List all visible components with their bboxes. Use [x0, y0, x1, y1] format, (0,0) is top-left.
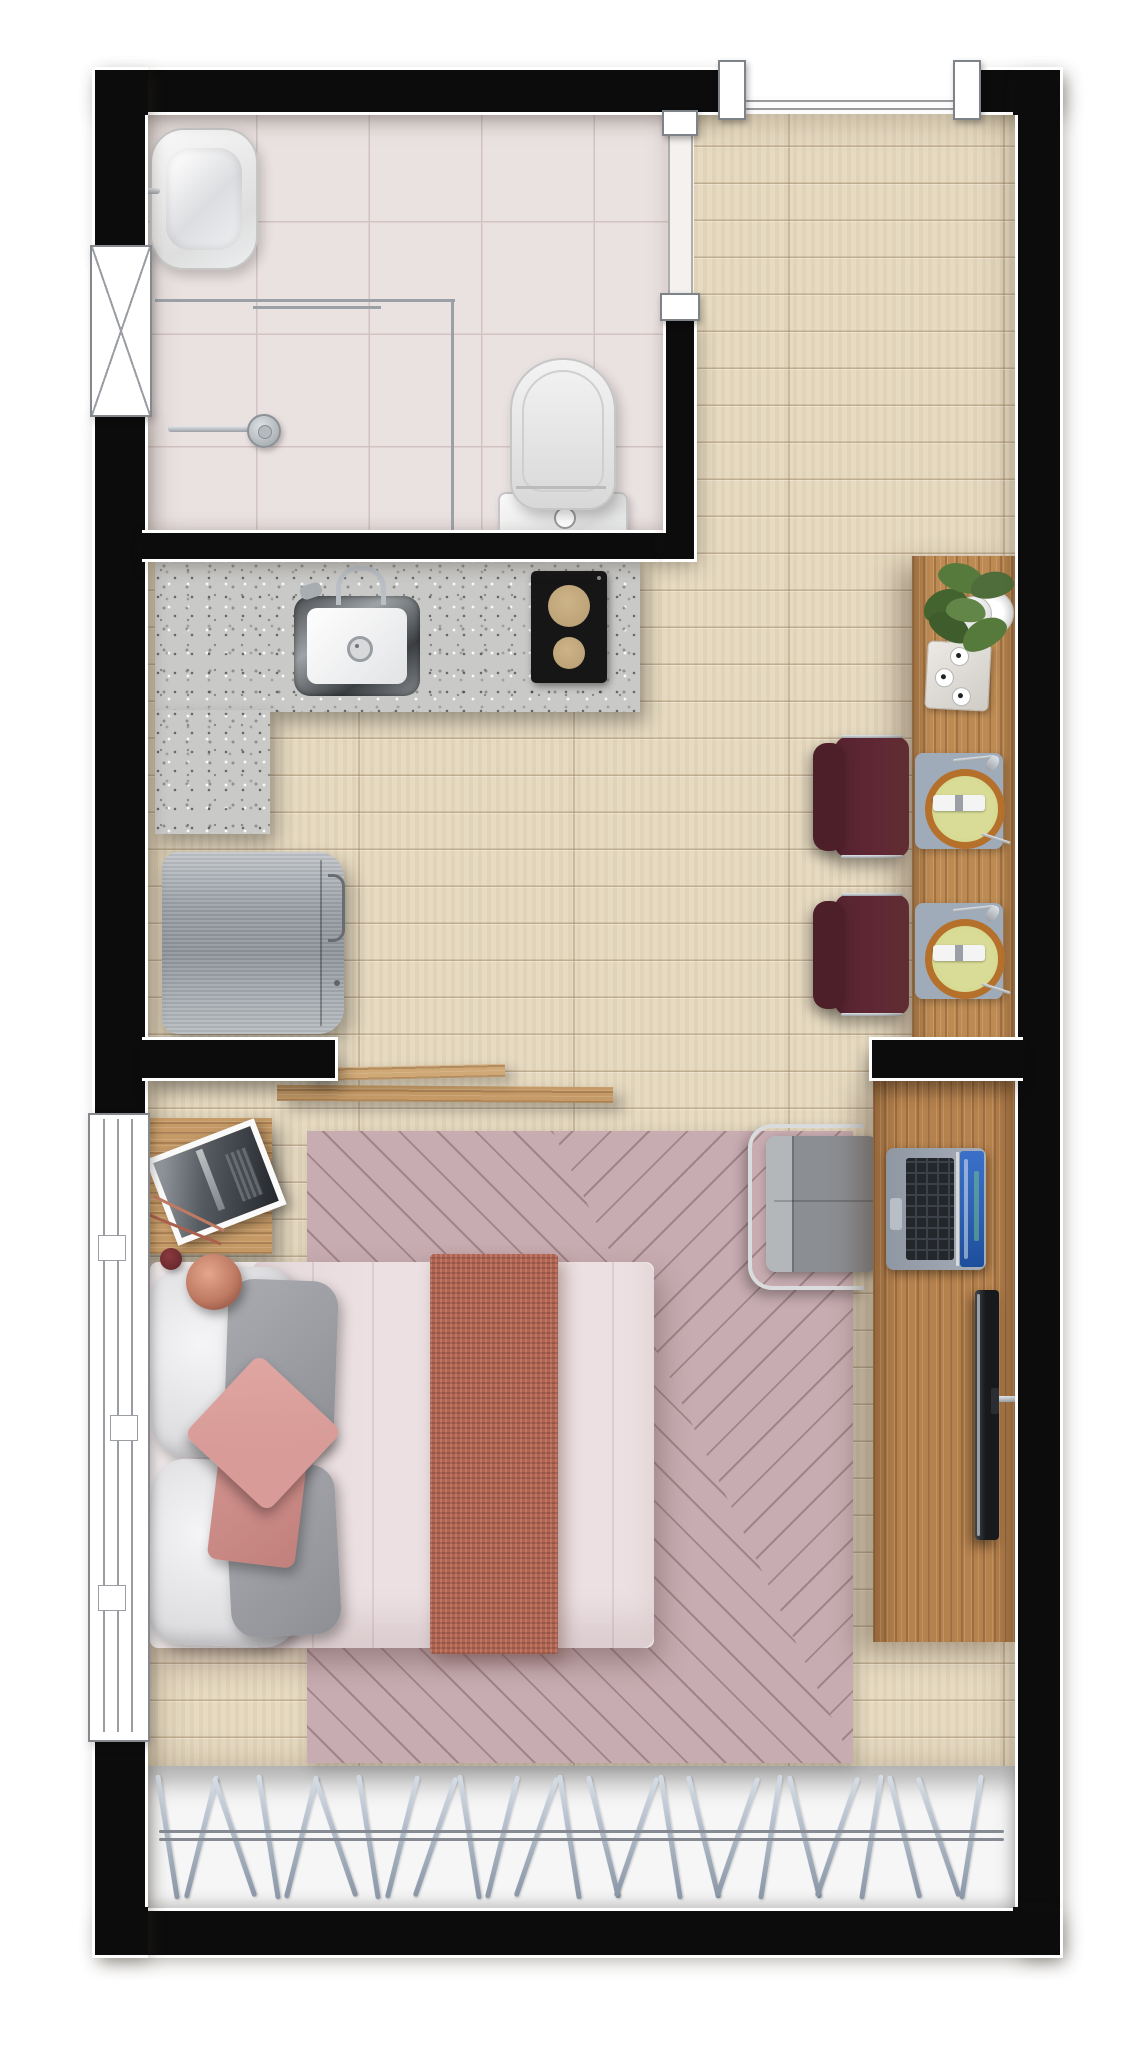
- kitchen-counter-granite-return: [155, 710, 270, 834]
- wall-left-mid: [95, 412, 145, 1113]
- floor-plan-canvas: [0, 0, 1138, 2048]
- clothes-hanger: [658, 1774, 683, 1899]
- clothes-hanger: [557, 1774, 582, 1899]
- clothes-hanger: [614, 1777, 660, 1898]
- basin-bowl: [166, 148, 242, 250]
- tv-bracket-arm: [991, 1388, 999, 1414]
- bedroom-sliding-window: [88, 1113, 150, 1742]
- clothes-hanger: [485, 1775, 520, 1898]
- closet-rail: [159, 1830, 1004, 1833]
- shower-head-icon: [247, 414, 281, 448]
- wall-right: [1018, 70, 1060, 1955]
- toilet-bowl: [510, 358, 616, 510]
- sink-drain: [347, 636, 373, 662]
- wall-top: [95, 70, 720, 112]
- burner-small: [553, 637, 585, 669]
- clothes-hanger: [714, 1777, 760, 1898]
- laptop-keyboard: [906, 1158, 954, 1260]
- laptop-touchpad: [890, 1198, 902, 1230]
- kitchen-sink: [294, 596, 420, 696]
- shower-glass-door: [253, 306, 381, 309]
- clothes-hanger: [585, 1775, 620, 1898]
- bathroom-door-jamb: [660, 293, 700, 321]
- clothes-hanger: [786, 1775, 821, 1898]
- clothes-hanger: [413, 1777, 459, 1898]
- throw-blanket: [430, 1254, 558, 1654]
- clothes-hanger: [457, 1774, 482, 1899]
- flush-button: [554, 507, 576, 529]
- place-setting: [915, 753, 1003, 849]
- clothes-hanger: [915, 1777, 961, 1898]
- clothes-hanger: [959, 1774, 984, 1899]
- closet-rail: [159, 1838, 1004, 1841]
- wall-bathroom-right: [666, 318, 694, 559]
- clothes-hanger: [859, 1774, 884, 1899]
- clothes-hanger: [284, 1775, 319, 1898]
- sink-basin: [307, 608, 407, 684]
- fridge-handle: [328, 874, 345, 942]
- desk-chair: [748, 1124, 880, 1290]
- burner-large: [548, 585, 590, 627]
- clothes-hanger: [212, 1777, 258, 1898]
- tv: [975, 1290, 999, 1540]
- clothes-hanger: [312, 1777, 358, 1898]
- potted-plant: [918, 562, 1014, 662]
- place-setting: [915, 903, 1003, 999]
- copper-table-lamp: [186, 1254, 242, 1310]
- clothes-hanger: [686, 1775, 721, 1898]
- clothes-hanger: [183, 1775, 218, 1898]
- wall-shelf: [277, 1085, 613, 1103]
- entry-door-jamb: [953, 60, 981, 120]
- clothes-hanger: [887, 1775, 922, 1898]
- wall-stub-right: [872, 1040, 1020, 1078]
- clothes-hanger: [513, 1777, 559, 1898]
- clothes-hanger: [356, 1774, 381, 1899]
- shower-glass-partition: [155, 299, 455, 302]
- clothes-hanger: [758, 1774, 783, 1899]
- wall-bathroom-bottom: [145, 533, 668, 559]
- laptop: [886, 1148, 986, 1270]
- clothes-hanger: [815, 1777, 861, 1898]
- clothes-hanger: [155, 1774, 180, 1899]
- entry-door-opening: [744, 96, 955, 114]
- dining-chair: [811, 735, 912, 859]
- bathroom-door-jamb: [662, 110, 698, 136]
- clothes-hanger: [256, 1774, 281, 1899]
- cooktop: [531, 571, 607, 683]
- clothes-hanger: [384, 1775, 419, 1898]
- bathroom-high-window: [90, 245, 152, 417]
- wall-stub-left: [145, 1040, 335, 1078]
- kitchen-faucet: [336, 566, 386, 605]
- dining-chair: [811, 893, 912, 1017]
- shower-glass-partition: [451, 299, 454, 533]
- laptop-screen: [960, 1151, 984, 1267]
- closet-strip: [145, 1766, 1018, 1913]
- small-vase: [160, 1248, 182, 1270]
- washbasin: [150, 128, 258, 270]
- entry-door-jamb: [718, 60, 746, 120]
- refrigerator: [162, 852, 344, 1034]
- shower-arm: [168, 426, 256, 432]
- wall-bottom: [95, 1911, 1060, 1955]
